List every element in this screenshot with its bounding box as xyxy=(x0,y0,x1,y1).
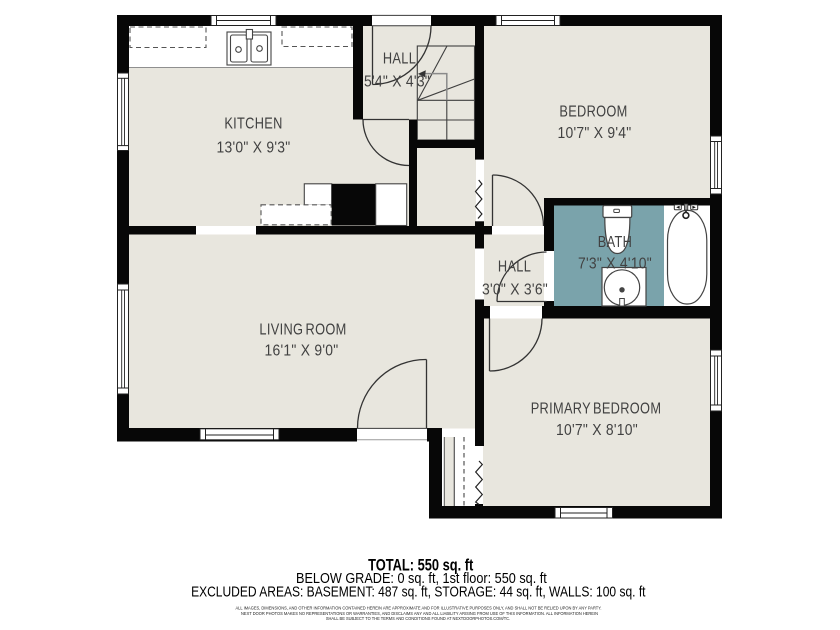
svg-text:10'7" X 9'4": 10'7" X 9'4" xyxy=(557,124,631,142)
svg-text:KITCHEN: KITCHEN xyxy=(224,115,282,133)
svg-text:HALL: HALL xyxy=(498,258,531,276)
svg-text:HALL: HALL xyxy=(383,50,416,68)
svg-text:13'0" X 9'3": 13'0" X 9'3" xyxy=(216,139,290,157)
svg-text:16'1" X 9'0": 16'1" X 9'0" xyxy=(264,342,338,360)
svg-text:BEDROOM: BEDROOM xyxy=(559,103,627,121)
svg-text:PRIMARY BEDROOM: PRIMARY BEDROOM xyxy=(531,400,662,418)
svg-text:7'3" X 4'10": 7'3" X 4'10" xyxy=(578,255,652,273)
svg-text:10'7" X 8'10": 10'7" X 8'10" xyxy=(556,421,638,439)
svg-text:SHALL BE SUBJECT TO THE TERMS: SHALL BE SUBJECT TO THE TERMS AND CONDIT… xyxy=(326,616,510,621)
svg-text:BATH: BATH xyxy=(598,234,632,252)
svg-text:3'0" X 3'6": 3'0" X 3'6" xyxy=(482,281,548,299)
svg-text:5'4" X 4'3": 5'4" X 4'3" xyxy=(364,73,430,91)
svg-text:EXCLUDED AREAS: BASEMENT: 487: EXCLUDED AREAS: BASEMENT: 487 sq. ft, ST… xyxy=(191,583,646,599)
svg-text:LIVING ROOM: LIVING ROOM xyxy=(259,321,346,339)
